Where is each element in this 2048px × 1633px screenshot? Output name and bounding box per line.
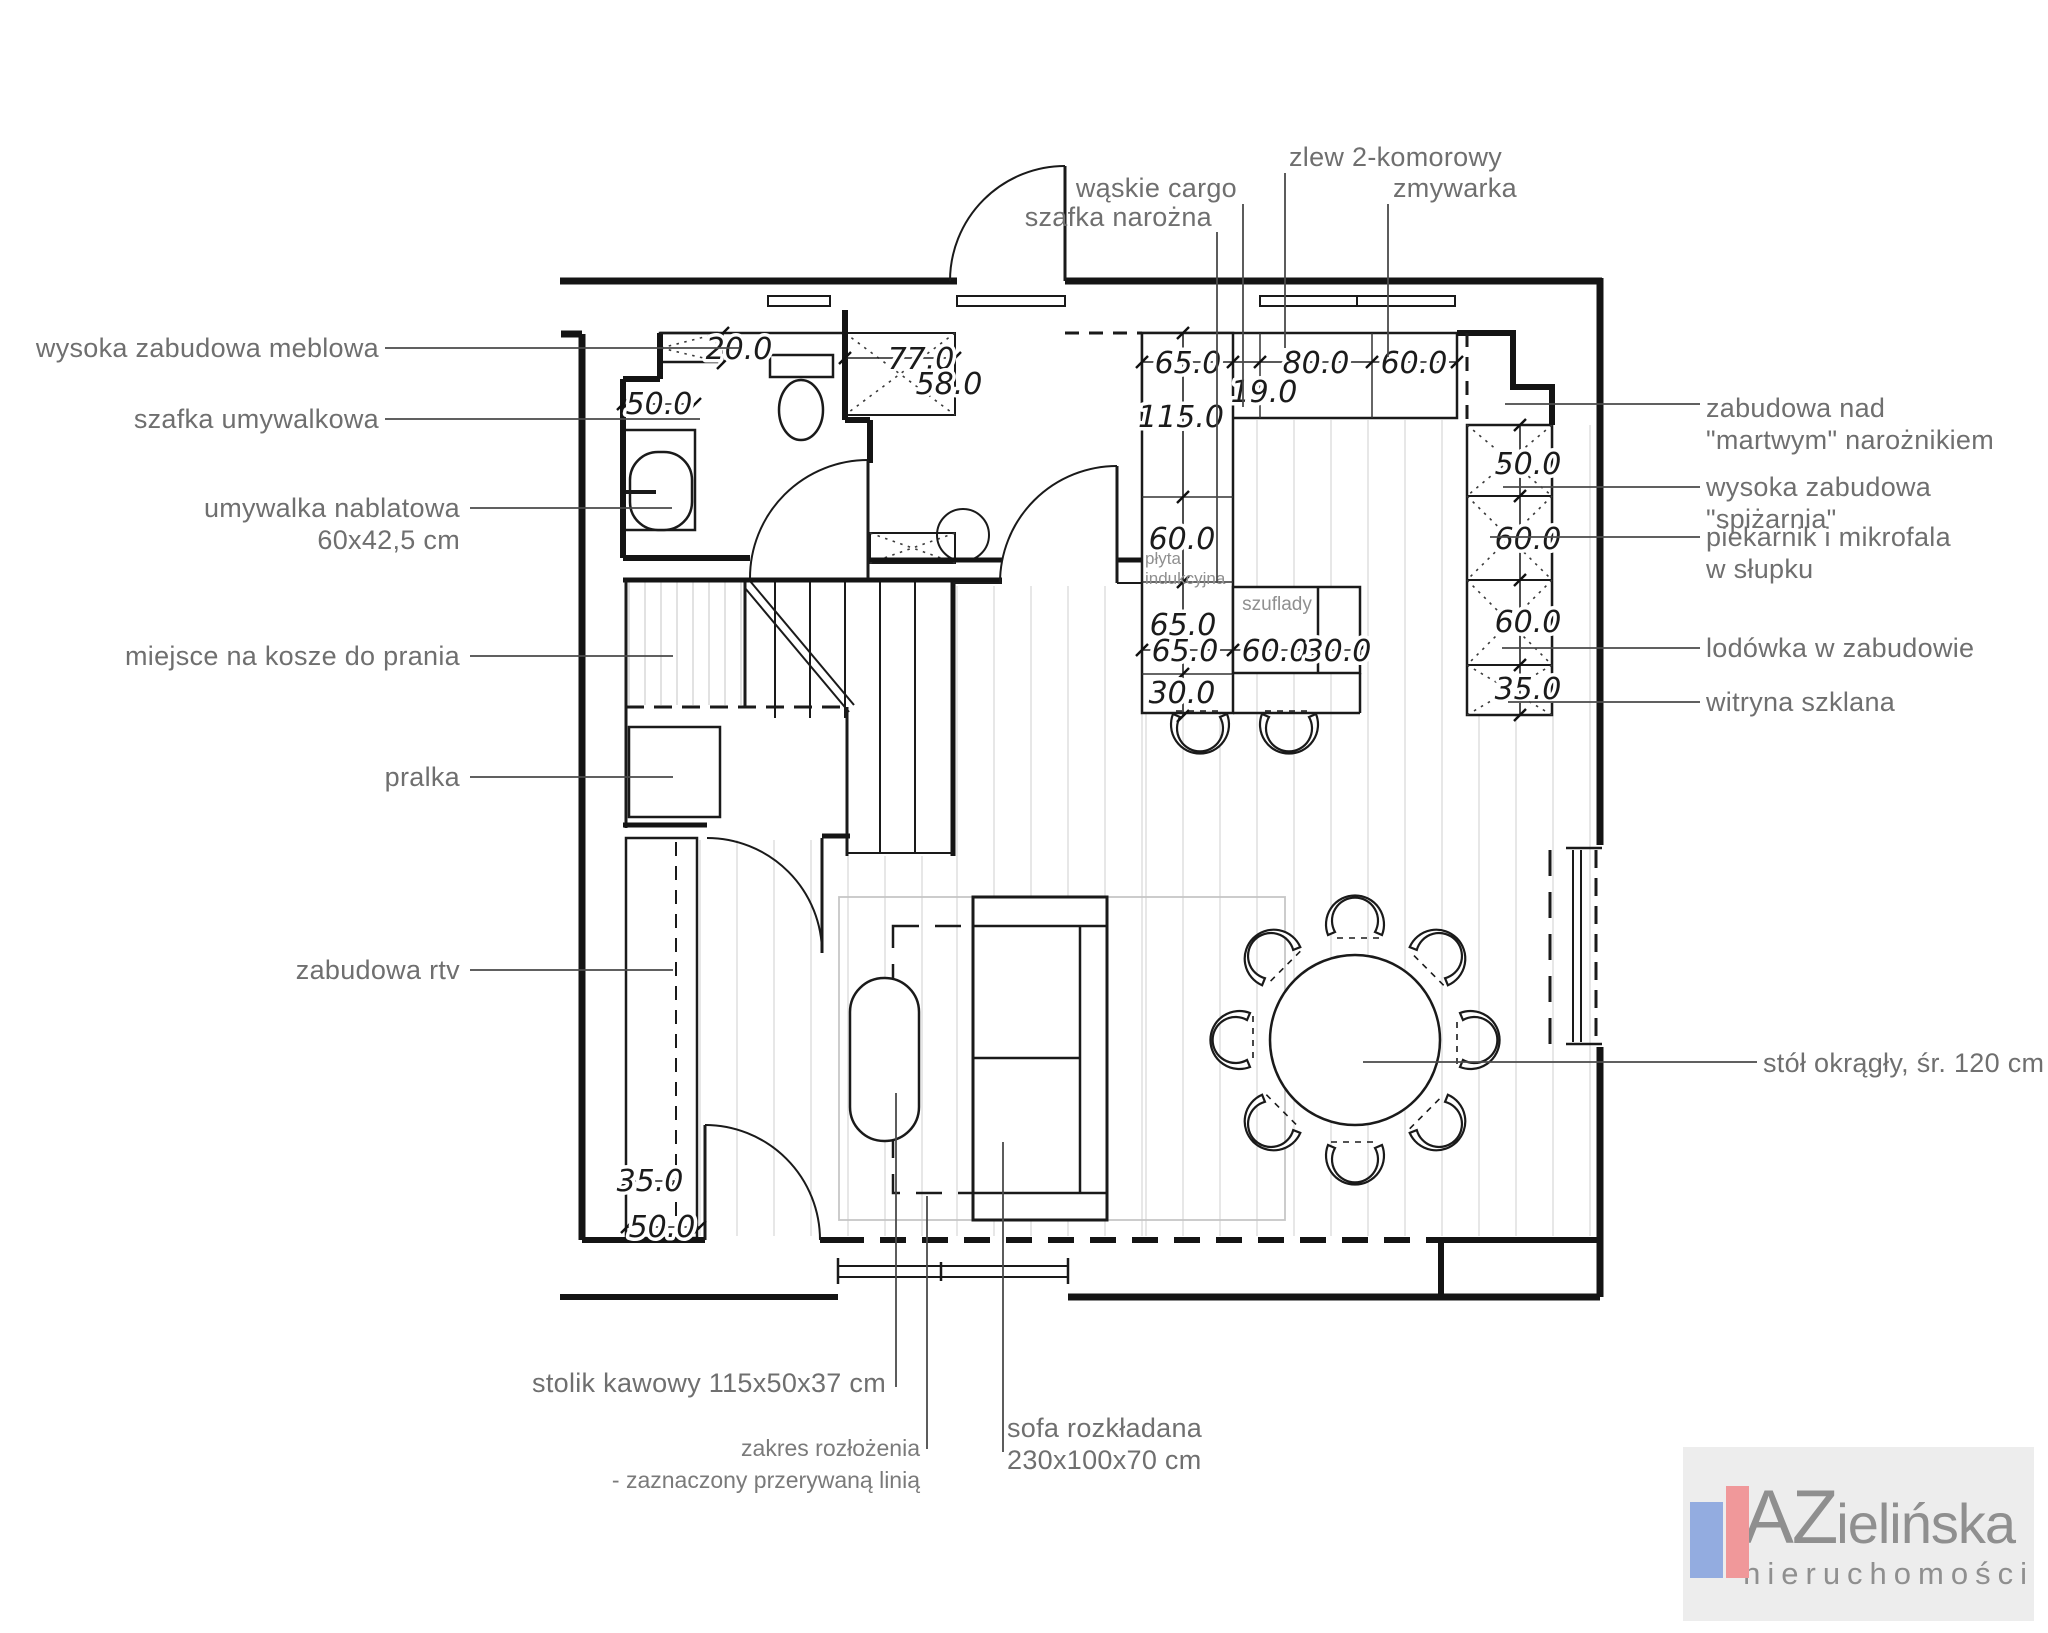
label-tall-furniture: wysoka zabudowa meblowa [35,333,380,363]
dim-50-washbasin: 50.0 [626,387,693,422]
hall-corner-cabinet [870,509,989,563]
dim-30-right: 30.0 [1305,634,1372,669]
dining-set [1210,895,1499,1184]
dim-50-column: 50.0 [1495,447,1562,482]
entry-threshold [957,296,1065,306]
label-round-table: stół okrągły, śr. 120 cm [1763,1048,2044,1078]
floor-plan-svg: 20.0 50.0 77.0 58.0 65.0 19.0 80.0 60.0 … [0,0,2048,1633]
window-living [838,1258,1068,1284]
dim-115: 115.0 [1138,400,1224,435]
label-fridge: lodówka w zabudowie [1706,633,1974,663]
washing-machine [629,727,720,817]
hob-annotation-line2: indukcyjna [1145,569,1226,588]
window-bathroom [768,296,830,306]
label-sink: zlew 2-komorowy [1289,142,1502,172]
label-washing-machine: pralka [385,762,461,792]
agency-logo: AZielińska nieruchomości [1683,1447,2034,1621]
terrace-door [705,1125,820,1240]
bar-stool [1260,711,1318,754]
dim-50-left: 50.0 [629,1210,696,1245]
logo-blue-bar-icon [1690,1502,1723,1578]
toilet-tank [770,355,833,377]
label-foldout-line2: - zaznaczony przerywaną linią [612,1467,920,1493]
label-glass-display: witryna szklana [1705,687,1896,717]
drawers-annotation: szuflady [1242,594,1312,615]
hall-living-door [1000,466,1117,583]
logo-text: AZielińska nieruchomości [1743,1480,2034,1589]
logo-red-bar-icon [1726,1486,1749,1578]
label-laundry-baskets: miejsce na kosze do prania [125,641,461,671]
label-sofa-line2: 230x100x70 cm [1007,1445,1202,1475]
label-dishwasher: zmywarka [1393,173,1518,203]
label-sofa-line1: sofa rozkładana [1007,1413,1203,1443]
logo-bars-icon [1683,1447,1743,1621]
hob-annotation-line1: płyta [1145,549,1181,568]
label-oven-line2: w słupku [1705,554,1813,584]
dim-60-island: 60.0 [1242,634,1309,669]
dim-80: 80.0 [1283,346,1350,381]
dim-35-left: 35.0 [617,1164,684,1199]
sofa [973,897,1107,1220]
label-pantry-line1: wysoka zabudowa [1705,472,1932,502]
coffee-table [850,978,919,1141]
label-coffee-table: stolik kawowy 115x50x37 cm [532,1368,886,1398]
laundry-door [707,838,822,953]
label-foldout-line1: zakres rozłożenia [741,1435,920,1461]
floor-hatch-laundry [629,582,741,705]
dim-65-top: 65.0 [1155,346,1222,381]
window-right [1566,848,1602,1044]
window-kitchen [1260,296,1455,306]
dim-20: 20.0 [706,332,773,367]
dim-60-column-b: 60.0 [1495,605,1562,640]
label-washbasin-line1: umywalka nablatowa [204,493,461,523]
dim-58: 58.0 [916,367,983,402]
dim-60-top: 60.0 [1381,346,1448,381]
label-cargo: wąskie cargo [1075,173,1237,203]
round-table [1270,955,1440,1125]
label-corner-cabinet: szafka narożna [1025,202,1213,232]
label-washbasin-line2: 60x42,5 cm [317,525,460,555]
logo-name: ielińska [1836,1492,2015,1555]
floor-plan-page: { "labels": { "wysoka_meblowa": "wysoka … [0,0,2048,1633]
label-tv-cabinet: zabudowa rtv [296,955,460,985]
dim-30-bottom: 30.0 [1149,676,1216,711]
toilet-bowl [779,380,823,440]
label-dead-corner-line1: zabudowa nad [1706,393,1885,423]
bathroom-door [750,460,868,578]
labels: wysoka zabudowa meblowa szafka umywalkow… [35,142,2044,1493]
label-dead-corner-line2: "martwym" narożnikiem [1706,425,1994,455]
label-oven-line1: piekarnik i mikrofala [1706,522,1952,552]
label-washbasin-cabinet: szafka umywalkowa [134,404,380,434]
dim-65-b: 65.0 [1152,634,1219,669]
dim-60-column-a: 60.0 [1495,522,1562,557]
logo-initials: AZ [1743,1475,1836,1560]
logo-subtitle: nieruchomości [1743,1558,2034,1589]
